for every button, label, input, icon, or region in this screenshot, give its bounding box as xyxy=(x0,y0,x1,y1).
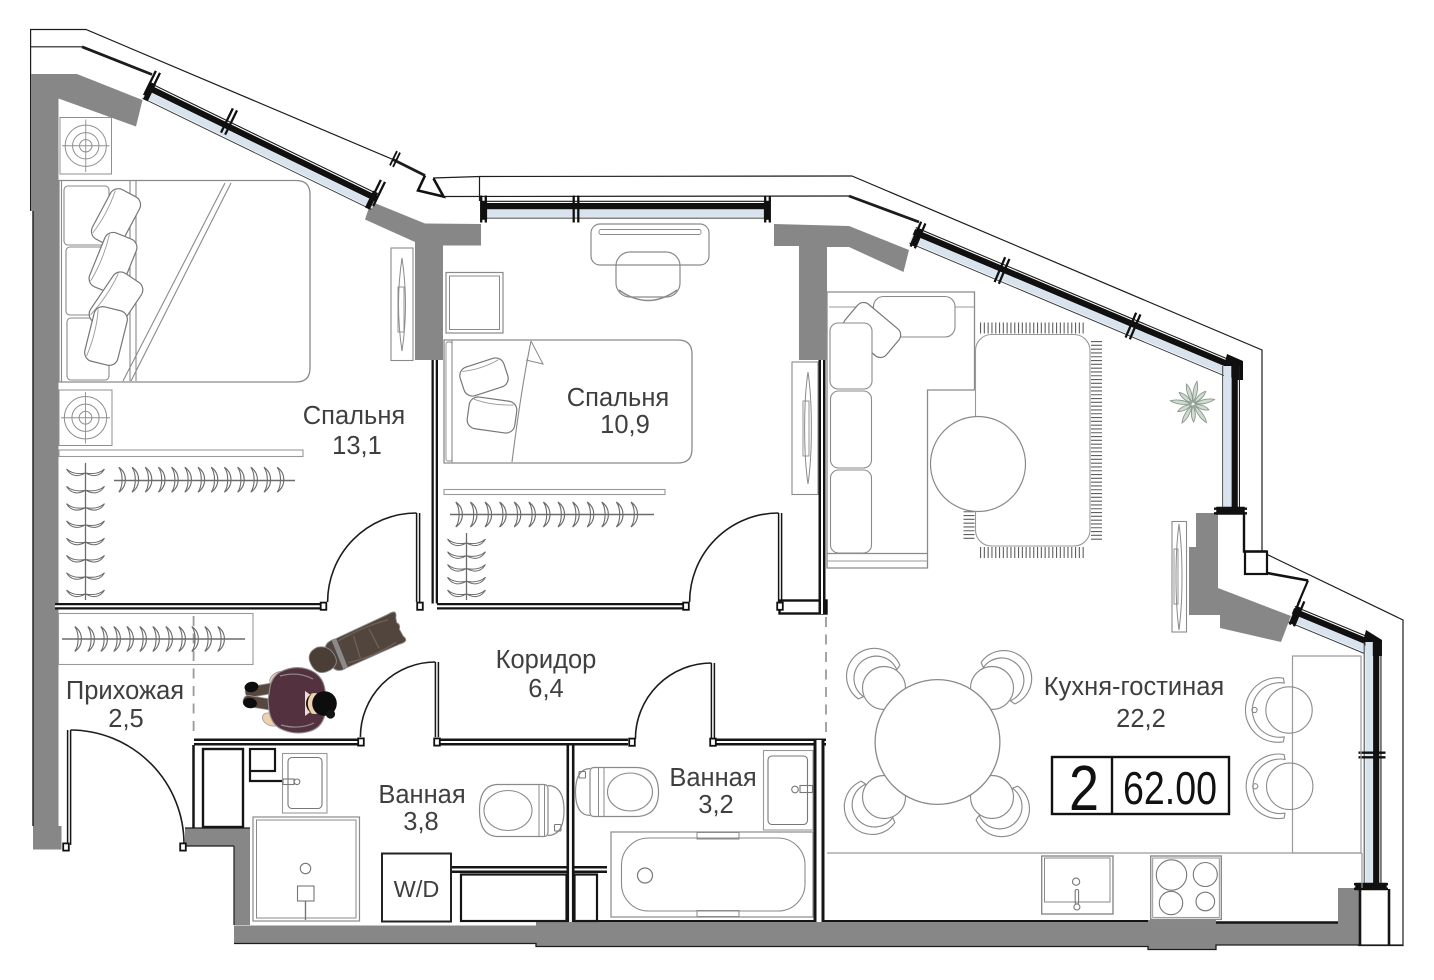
svg-text:Ванная: Ванная xyxy=(378,781,465,809)
svg-text:22,2: 22,2 xyxy=(1116,705,1166,733)
svg-text:Спальня: Спальня xyxy=(303,402,405,430)
svg-text:2,5: 2,5 xyxy=(108,705,143,733)
svg-text:Ванная: Ванная xyxy=(669,764,756,792)
svg-text:Спальня: Спальня xyxy=(567,384,669,412)
svg-text:3,2: 3,2 xyxy=(698,791,733,819)
svg-text:6,4: 6,4 xyxy=(528,675,563,703)
svg-text:W/D: W/D xyxy=(394,876,440,902)
svg-text:Прихожая: Прихожая xyxy=(66,677,184,705)
svg-text:3,8: 3,8 xyxy=(403,808,438,836)
svg-text:62.00: 62.00 xyxy=(1123,762,1217,814)
svg-text:13,1: 13,1 xyxy=(332,432,382,460)
svg-text:Коридор: Коридор xyxy=(496,646,597,674)
svg-text:10,9: 10,9 xyxy=(600,411,650,439)
svg-text:Кухня-гостиная: Кухня-гостиная xyxy=(1044,673,1224,701)
svg-text:2: 2 xyxy=(1069,752,1099,824)
